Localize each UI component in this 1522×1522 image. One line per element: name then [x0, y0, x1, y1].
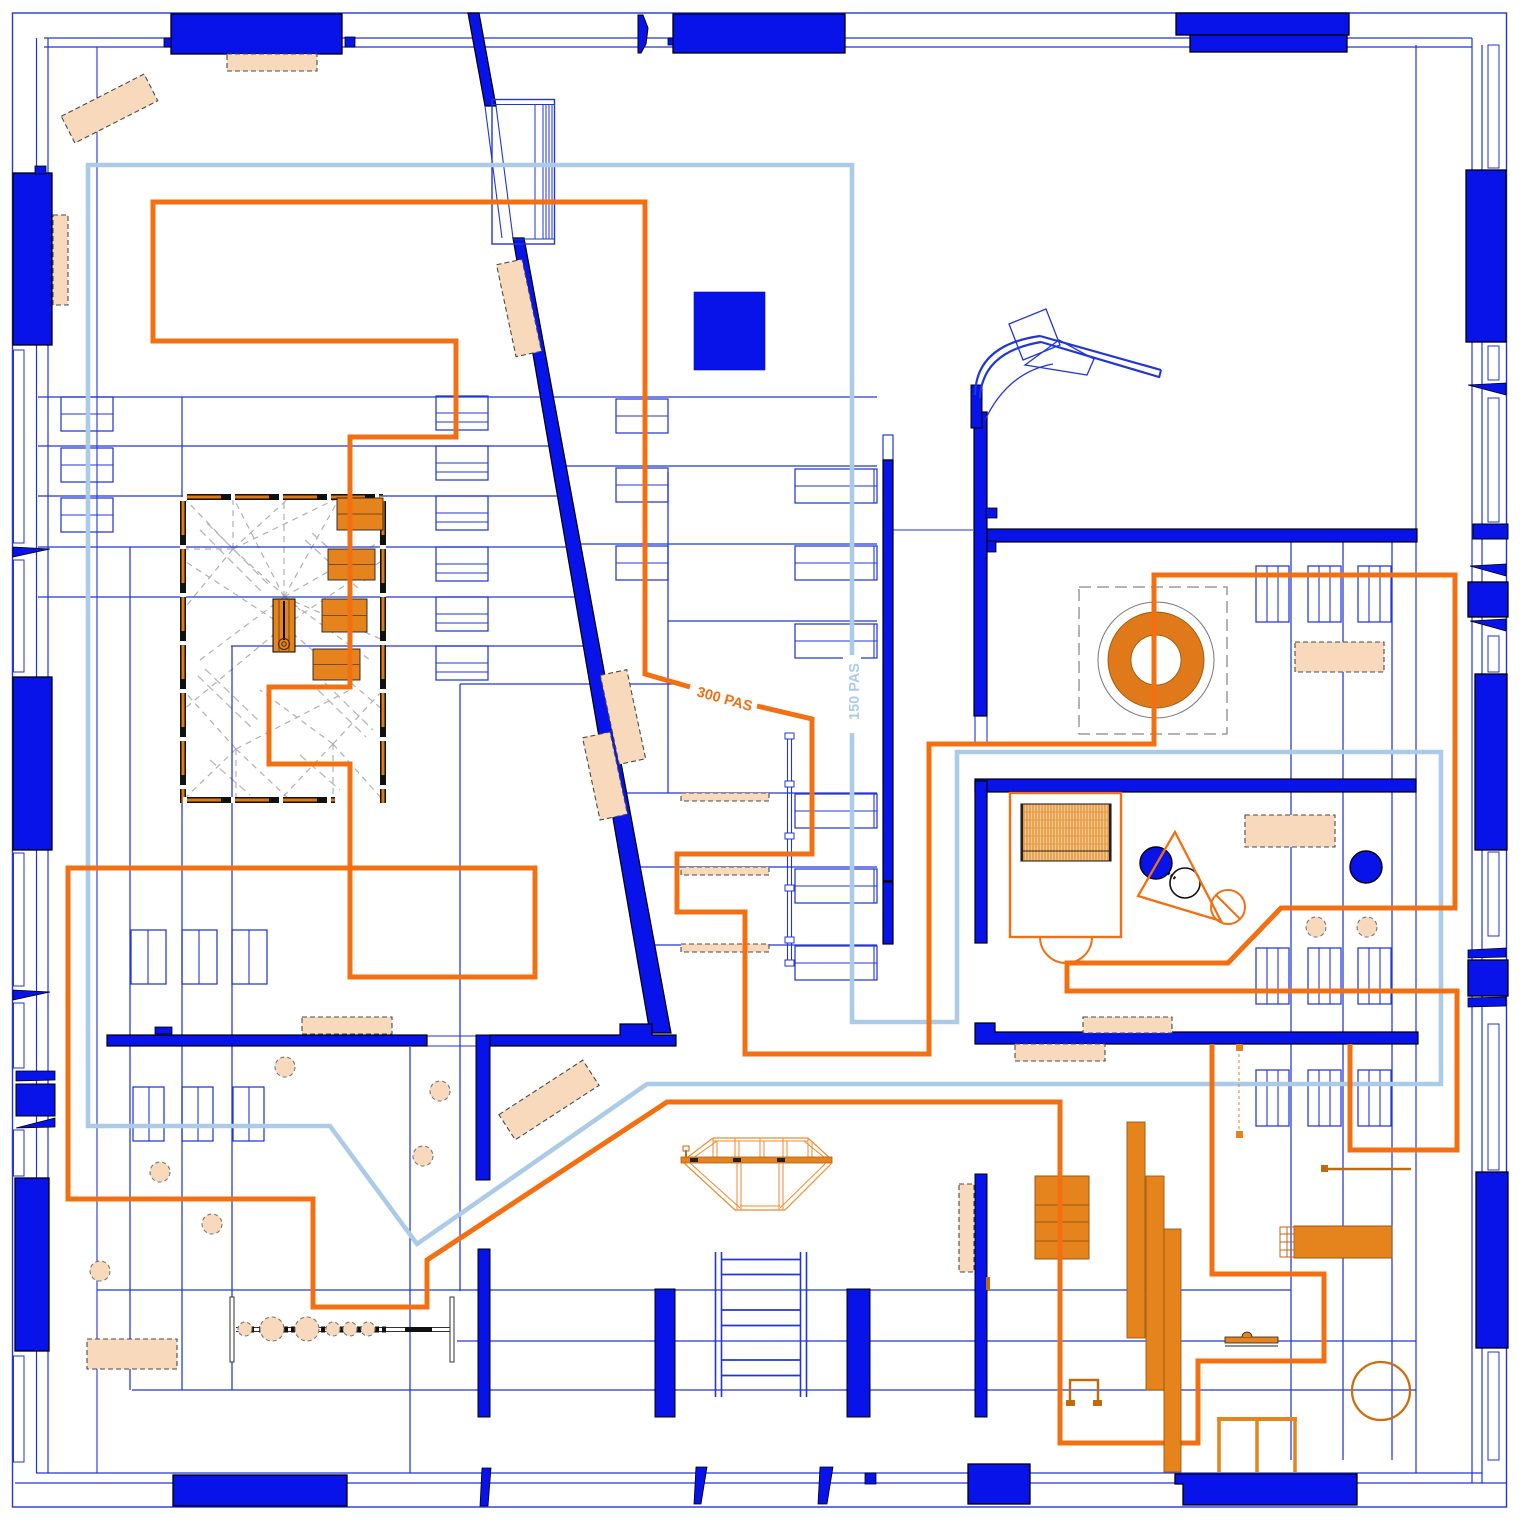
svg-text:150 PAS: 150 PAS	[847, 663, 863, 720]
